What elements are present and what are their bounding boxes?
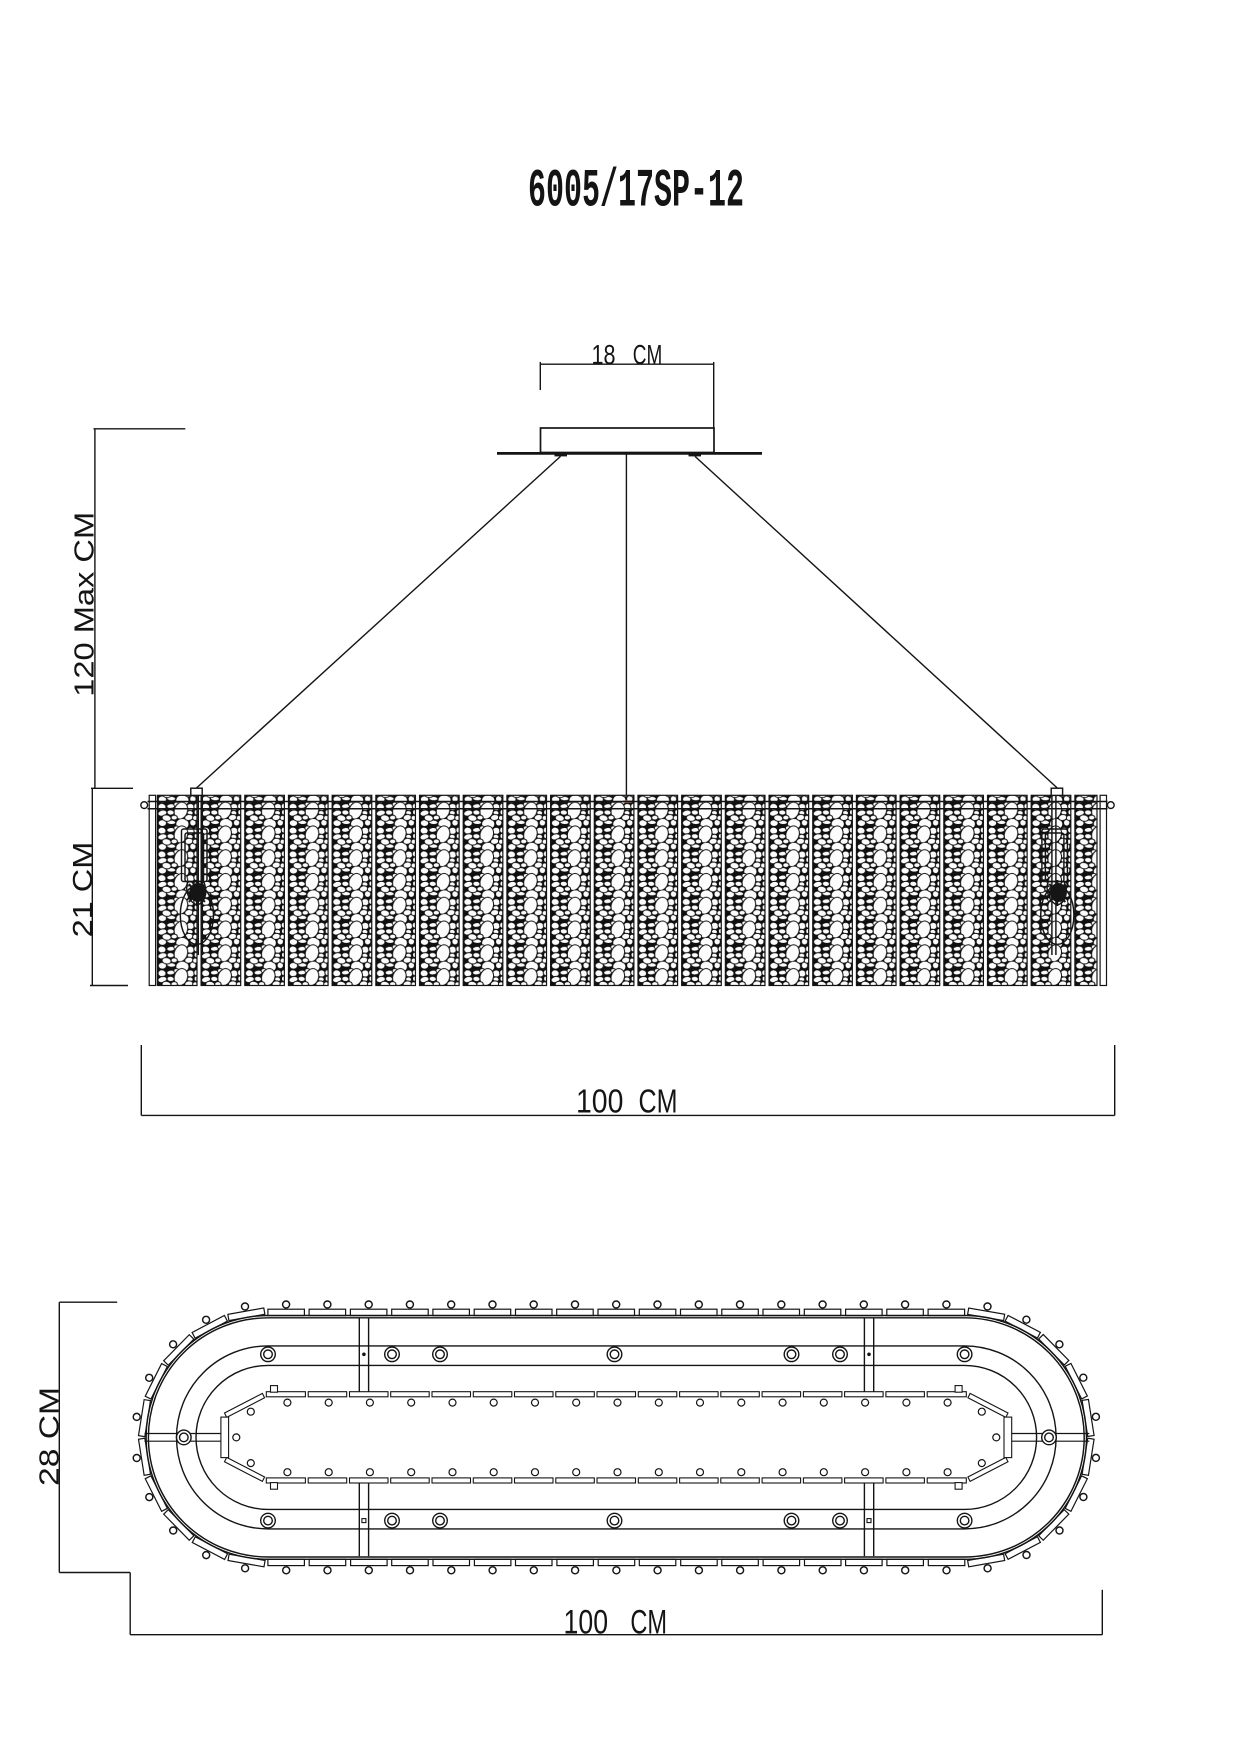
svg-text:120 Max CM: 120 Max CM bbox=[69, 512, 100, 697]
svg-text:CM: CM bbox=[630, 1603, 667, 1641]
svg-text:18: 18 bbox=[592, 339, 616, 370]
svg-text:CM: CM bbox=[633, 339, 663, 370]
svg-text:28 CM: 28 CM bbox=[34, 1387, 65, 1486]
svg-text:100: 100 bbox=[564, 1603, 609, 1641]
svg-text:CM: CM bbox=[639, 1083, 678, 1120]
svg-text:100: 100 bbox=[576, 1083, 623, 1120]
svg-text:6005/17SP-12: 6005/17SP-12 bbox=[528, 162, 744, 223]
svg-text:21 CM: 21 CM bbox=[67, 842, 98, 938]
